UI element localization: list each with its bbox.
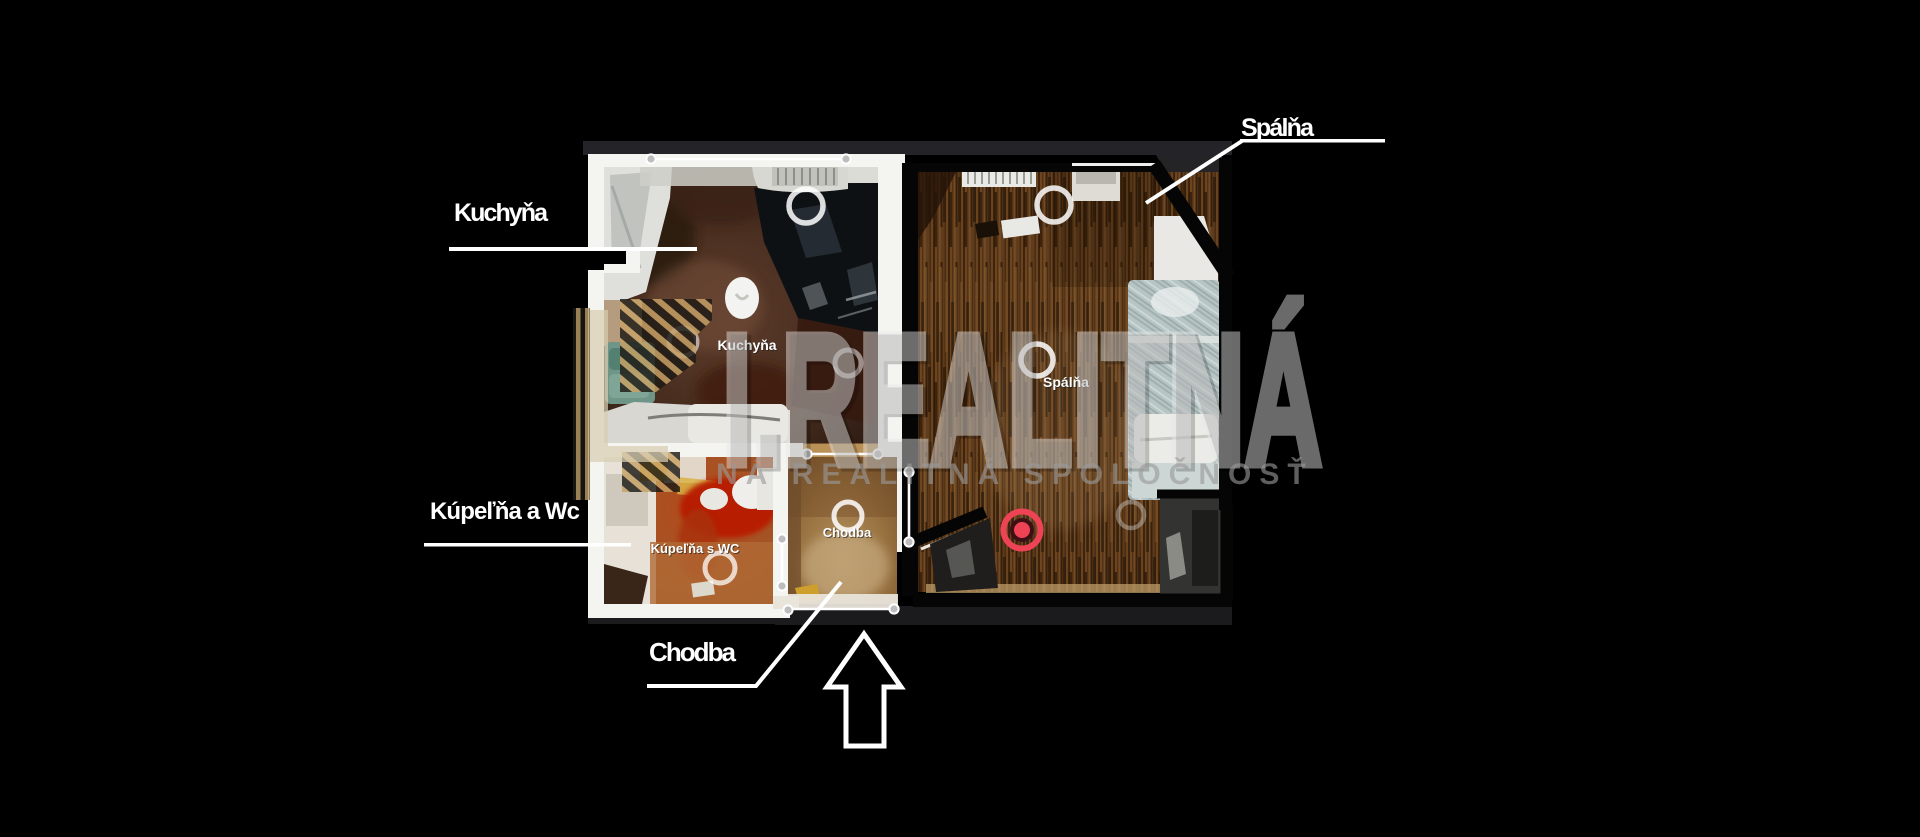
svg-text:Kúpeľňa s WC: Kúpeľňa s WC (651, 541, 740, 556)
svg-text:NÁ REALITNÁ SPOLOČNOSŤ: NÁ REALITNÁ SPOLOČNOSŤ (716, 457, 1314, 491)
svg-text:Chodba: Chodba (823, 525, 872, 540)
svg-text:Spálňa: Spálňa (1241, 114, 1315, 142)
svg-text:Chodba: Chodba (649, 637, 737, 667)
svg-text:Kúpeľňa a Wc: Kúpeľňa a Wc (430, 498, 580, 525)
svg-text:Kuchyňa: Kuchyňa (454, 199, 549, 227)
